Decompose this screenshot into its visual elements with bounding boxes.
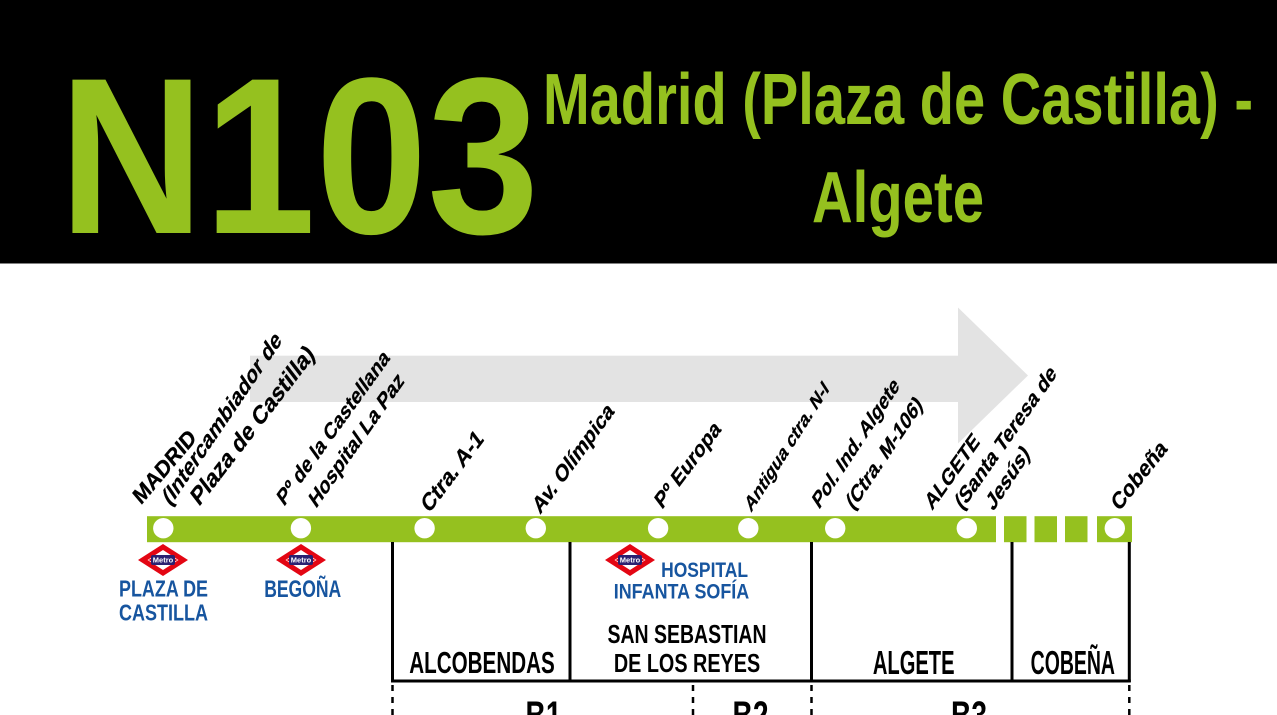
svg-text:HOSPITAL: HOSPITAL xyxy=(661,559,748,582)
svg-text:ALGETE: ALGETE xyxy=(873,644,955,681)
svg-text:DE LOS REYES: DE LOS REYES xyxy=(614,648,760,678)
svg-text:B2: B2 xyxy=(733,694,769,715)
svg-text:N103: N103 xyxy=(59,32,539,281)
svg-text:SAN SEBASTIAN: SAN SEBASTIAN xyxy=(608,619,767,649)
svg-text:Madrid (Plaza de Castilla) -: Madrid (Plaza de Castilla) - xyxy=(543,60,1253,140)
svg-text:Metro: Metro xyxy=(620,556,641,565)
svg-text:INFANTA SOFÍA: INFANTA SOFÍA xyxy=(614,580,750,603)
svg-text:B1: B1 xyxy=(526,694,562,715)
svg-text:BEGOÑA: BEGOÑA xyxy=(264,575,341,603)
svg-text:COBEÑA: COBEÑA xyxy=(1031,644,1115,681)
svg-text:Metro: Metro xyxy=(291,556,312,565)
svg-text:PLAZA DE: PLAZA DE xyxy=(119,576,208,602)
svg-text:Algete: Algete xyxy=(812,158,984,238)
svg-text:Metro: Metro xyxy=(153,556,174,565)
svg-text:B3: B3 xyxy=(951,694,987,715)
svg-text:CASTILLA: CASTILLA xyxy=(119,599,208,625)
svg-text:ALCOBENDAS: ALCOBENDAS xyxy=(409,645,555,680)
